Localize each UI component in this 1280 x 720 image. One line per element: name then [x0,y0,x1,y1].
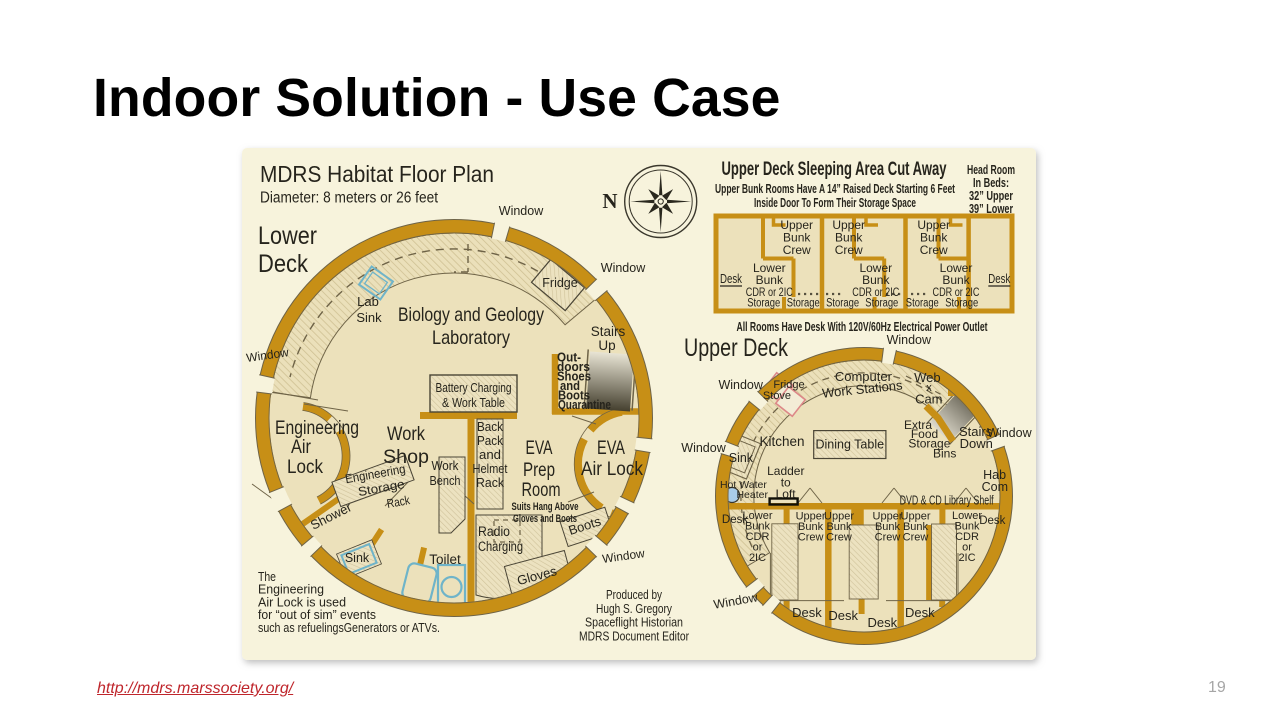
svg-text:Storage: Storage [865,298,898,310]
svg-text:Crew: Crew [920,243,948,257]
svg-text:Window: Window [987,426,1032,440]
svg-text:Desk: Desk [867,615,897,630]
svg-text:2IC: 2IC [749,552,766,564]
svg-text:Desk: Desk [905,605,935,620]
svg-text:Loft: Loft [776,487,797,501]
svg-text:Window: Window [718,378,763,392]
svg-text:Pack: Pack [477,434,504,448]
svg-text:Charging: Charging [478,539,523,554]
svg-text:Desk: Desk [979,515,1005,527]
svg-text:Crew: Crew [798,532,824,544]
svg-text:Upper Bunk Rooms Have A 14” Ra: Upper Bunk Rooms Have A 14” Raised Deck … [715,182,956,196]
svg-text:Crew: Crew [835,243,863,257]
svg-text:MDRS Habitat Floor Plan: MDRS Habitat Floor Plan [260,161,494,187]
svg-text:Battery Charging: Battery Charging [436,381,512,395]
svg-text:Lock: Lock [287,457,323,478]
svg-text:Window: Window [499,204,544,218]
svg-text:MDRS Document Editor: MDRS Document Editor [579,629,689,643]
svg-text:Sink: Sink [345,551,370,565]
svg-text:Window: Window [681,441,726,455]
svg-text:Deck: Deck [258,250,308,278]
svg-text:Bench: Bench [430,474,461,488]
svg-text:Desk: Desk [792,605,822,620]
svg-text:EVA: EVA [597,438,625,459]
svg-text:Storage: Storage [945,298,978,310]
svg-text:Lab: Lab [357,294,379,309]
svg-text:Air: Air [291,437,312,458]
svg-text:Work: Work [432,459,460,473]
svg-text:Down: Down [960,436,993,451]
svg-text:Storage: Storage [787,298,820,310]
svg-text:Upper Deck: Upper Deck [684,334,788,362]
svg-text:Radio: Radio [478,524,510,539]
svg-text:Desk: Desk [828,608,858,623]
svg-text:DVD & CD Library Shelf: DVD & CD Library Shelf [900,494,994,508]
svg-text:Desk: Desk [988,272,1011,286]
svg-text:All Rooms Have Desk With 120V/: All Rooms Have Desk With 120V/60Hz Elect… [737,319,988,334]
svg-text:Lower: Lower [258,222,317,250]
svg-text:Prep: Prep [523,460,555,481]
svg-text:Head Room: Head Room [967,163,1015,177]
svg-text:Stove: Stove [763,390,791,402]
svg-text:& Work Table: & Work Table [442,396,505,410]
svg-text:Crew: Crew [826,532,852,544]
svg-text:Helmet: Helmet [473,462,508,476]
svg-text:39” Lower: 39” Lower [969,202,1013,216]
svg-text:Fridge: Fridge [542,276,577,290]
svg-text:Diameter: 8 meters or 26 feet: Diameter: 8 meters or 26 feet [260,190,439,207]
svg-text:Air Lock: Air Lock [581,459,643,480]
svg-text:Window: Window [601,261,646,275]
svg-text:Crew: Crew [875,532,901,544]
svg-text:Kitchen: Kitchen [759,434,804,449]
svg-text:Upper Deck Sleeping Area Cut A: Upper Deck Sleeping Area Cut Away [722,159,947,180]
svg-text:Suits Hang Above: Suits Hang Above [512,501,579,513]
svg-text:Back: Back [477,420,504,434]
svg-text:Quarantine: Quarantine [558,398,611,412]
svg-text:Up: Up [598,338,615,353]
svg-text:Work: Work [387,424,425,445]
svg-text:Crew: Crew [783,243,811,257]
svg-text:and: and [479,448,501,462]
svg-text:Storage: Storage [906,298,939,310]
svg-text:Cam: Cam [915,392,942,407]
svg-text:Window: Window [887,333,932,347]
svg-text:Produced by: Produced by [606,588,663,602]
svg-text:Rack: Rack [476,476,505,490]
svg-text:Biology and Geology: Biology and Geology [398,304,544,326]
svg-text:Com: Com [982,480,1008,494]
svg-text:2IC: 2IC [958,552,975,564]
svg-text:N: N [602,189,617,213]
svg-text:Inside Door To Form Their Stor: Inside Door To Form Their Storage Space [754,196,916,210]
svg-text:Spaceflight Historian: Spaceflight Historian [585,616,683,630]
svg-text:Heater: Heater [736,489,768,501]
svg-text:Desk: Desk [720,272,743,286]
svg-text:such as refuelingsGenerators o: such as refuelingsGenerators or ATVs. [258,621,440,635]
svg-text:Dining Table: Dining Table [816,438,885,452]
svg-text:Storage: Storage [747,298,780,310]
svg-text:Toilet: Toilet [429,552,461,567]
svg-text:Laboratory: Laboratory [432,327,510,349]
svg-text:Crew: Crew [903,532,929,544]
svg-text:32” Upper: 32” Upper [969,189,1013,203]
svg-text:Bins: Bins [933,447,956,461]
svg-text:Sink: Sink [356,310,382,325]
svg-text:Stairs: Stairs [591,324,626,339]
svg-text:Sink: Sink [729,451,754,465]
svg-text:Storage: Storage [826,298,859,310]
svg-text:In Beds:: In Beds: [973,176,1009,190]
svg-text:Engineering: Engineering [275,418,359,439]
svg-text:Hugh S. Gregory: Hugh S. Gregory [596,602,673,616]
svg-text:Room: Room [522,480,561,501]
svg-text:EVA: EVA [526,438,553,459]
